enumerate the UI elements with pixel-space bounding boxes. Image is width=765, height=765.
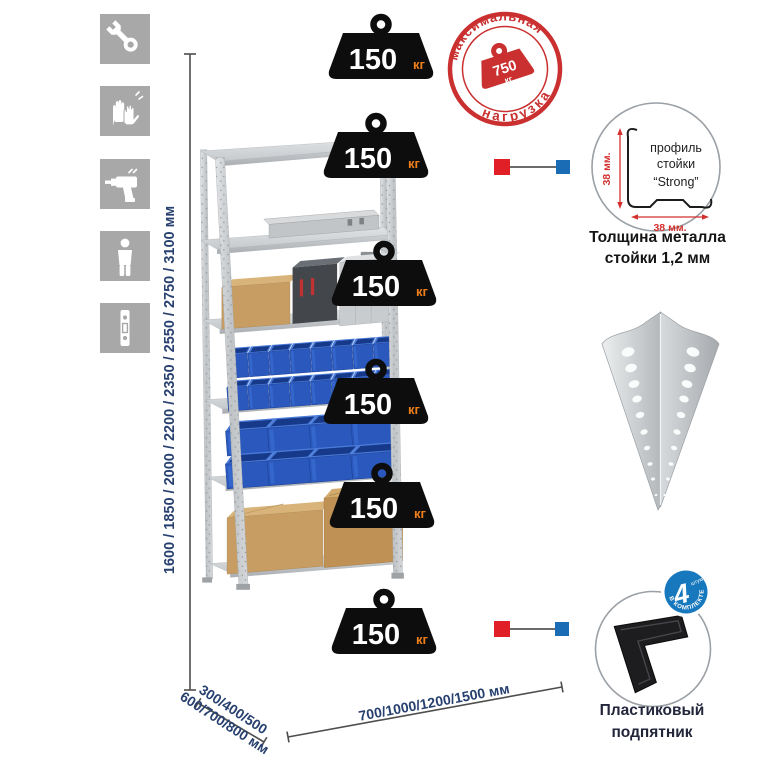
wrench-icon: [100, 14, 150, 64]
svg-text:кг: кг: [416, 284, 429, 299]
plastic-foot-caption: Пластиковый подпятник: [578, 700, 726, 743]
gloves-icon: [100, 86, 150, 136]
shelf-load-badge: 150 кг: [322, 358, 430, 428]
shelf-load-badge: 150 кг: [322, 112, 430, 182]
shelf-load-badge: 150 кг: [327, 13, 435, 83]
svg-text:150: 150: [349, 44, 397, 76]
svg-text:150: 150: [344, 389, 392, 421]
rack-post-icon: [100, 303, 150, 353]
svg-text:38 мм.: 38 мм.: [601, 152, 613, 185]
svg-text:150: 150: [350, 493, 398, 525]
svg-text:стойки: стойки: [657, 157, 695, 171]
svg-text:150: 150: [344, 143, 392, 175]
metal-thickness-caption: Толщина металла стойки 1,2 мм: [575, 228, 740, 270]
person-height-icon: [100, 231, 150, 281]
profile-label: профиль стойки “Strong”: [650, 141, 702, 189]
svg-text:150: 150: [352, 271, 400, 303]
product-infographic: 1600 / 1850 / 2000 / 2200 / 2350 / 2550 …: [0, 0, 765, 765]
svg-text:профиль: профиль: [650, 141, 702, 155]
shelf-load-badge: 150 кг: [330, 240, 438, 310]
post-profile-detail: 38 мм. 38 мм. профиль стойки “Strong”: [589, 100, 723, 234]
svg-text:“Strong”: “Strong”: [653, 175, 698, 189]
svg-text:кг: кг: [413, 57, 426, 72]
svg-text:150: 150: [352, 619, 400, 651]
drill-icon: [100, 159, 150, 209]
svg-text:кг: кг: [408, 402, 421, 417]
max-load-stamp: максимальная нагрузка 750 кг: [440, 4, 570, 134]
svg-text:кг: кг: [408, 156, 421, 171]
shelf-load-badge: 150 кг: [328, 462, 436, 532]
corner-post-image: [588, 300, 733, 525]
shelf-load-badge: 150 кг: [330, 588, 438, 658]
height-dimensions-label: 1600 / 1850 / 2000 / 2200 / 2350 / 2550 …: [162, 90, 180, 690]
kit-count-badge: 4 штуки в комплекте: [660, 566, 712, 618]
svg-text:кг: кг: [416, 632, 429, 647]
svg-text:кг: кг: [414, 506, 427, 521]
